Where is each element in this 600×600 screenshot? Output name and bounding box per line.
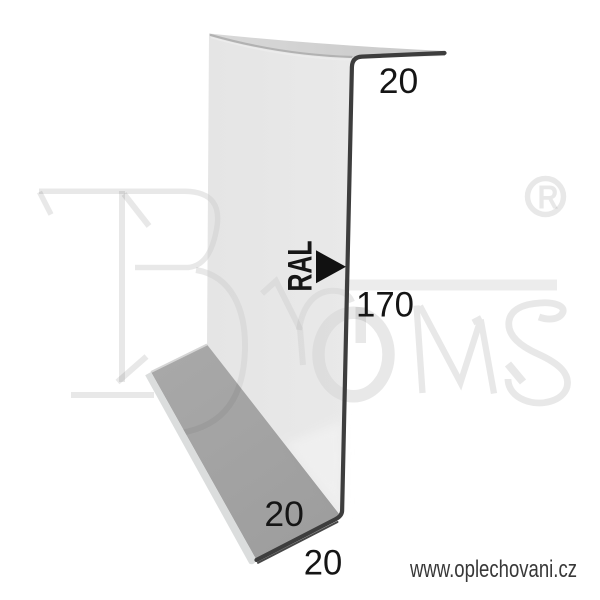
svg-text:RAL: RAL bbox=[282, 241, 320, 292]
svg-text:R: R bbox=[538, 179, 559, 216]
svg-text:20: 20 bbox=[379, 62, 419, 101]
svg-text:20: 20 bbox=[304, 544, 343, 583]
svg-text:170: 170 bbox=[356, 286, 414, 325]
svg-text:www.oplechovani.cz: www.oplechovani.cz bbox=[409, 556, 577, 583]
svg-text:20: 20 bbox=[264, 495, 304, 534]
